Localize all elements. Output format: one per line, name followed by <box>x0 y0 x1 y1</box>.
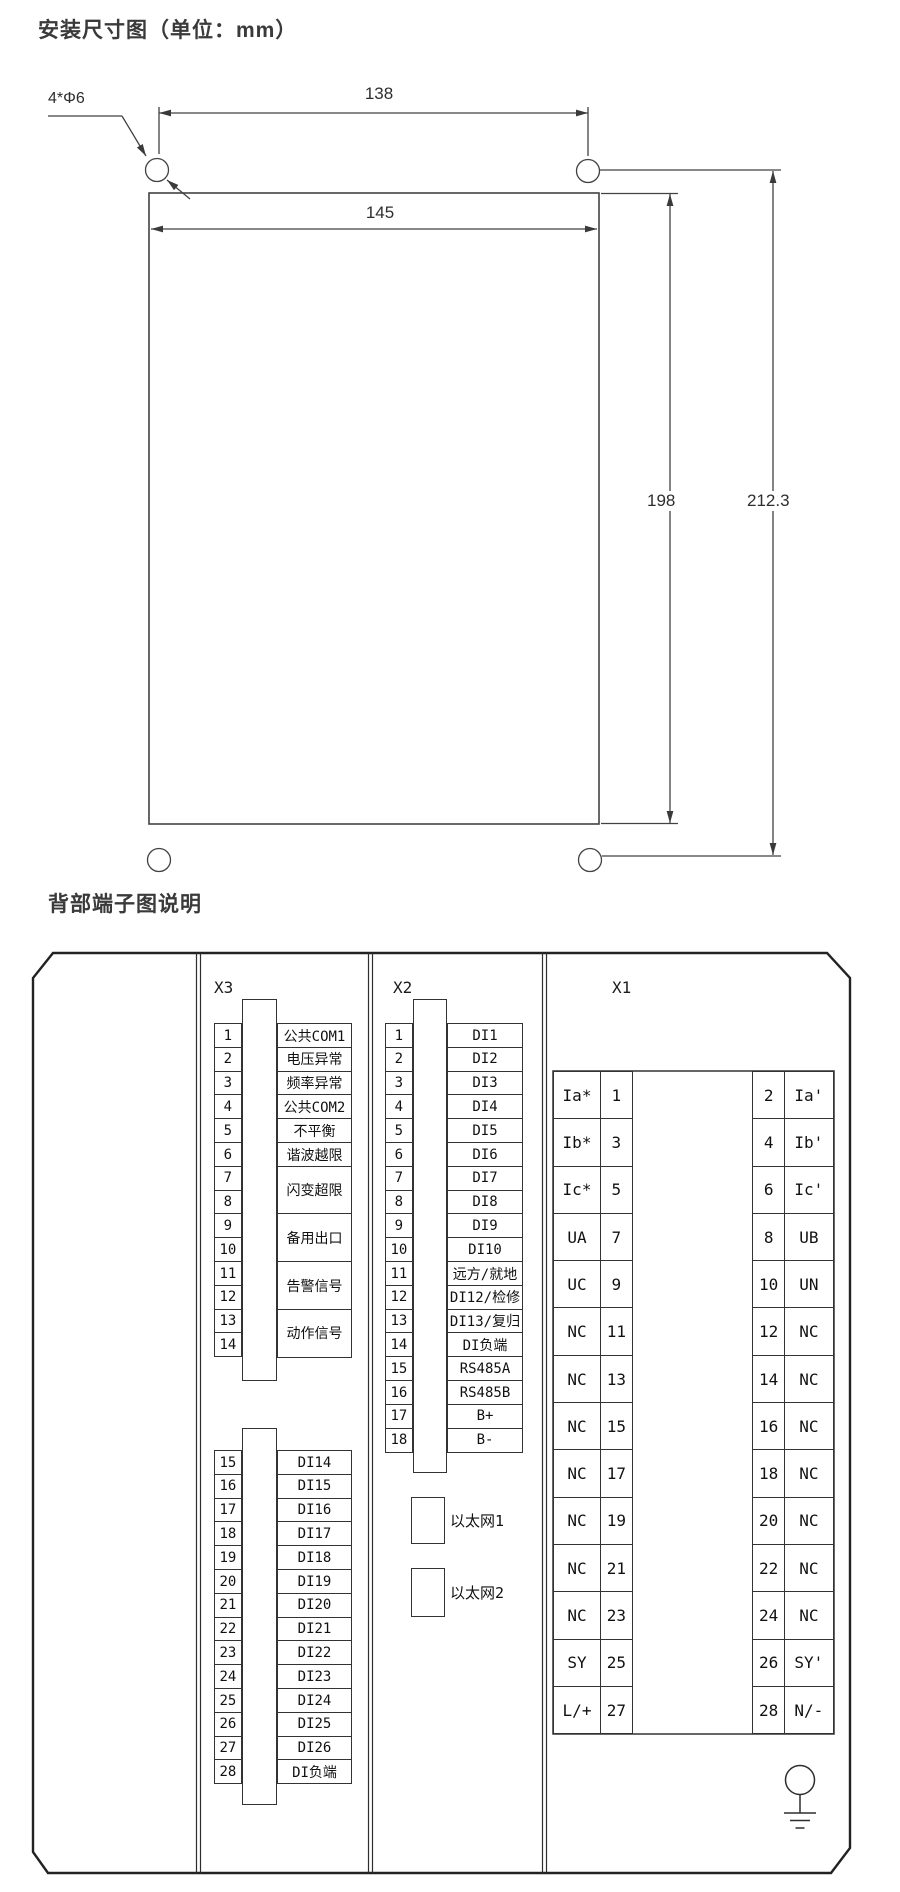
terminal-number: 8 <box>385 1190 413 1215</box>
terminal-number: 28 <box>214 1759 242 1784</box>
ethernet-port-2-label: 以太网2 <box>450 1568 504 1617</box>
x2-header: X2 <box>393 978 412 997</box>
x1-right-label: NC <box>784 1544 834 1593</box>
x2-numbers: 123456789101112131415161718 <box>385 1023 413 1453</box>
terminal-number: 8 <box>214 1190 242 1215</box>
terminal-number: 4 <box>385 1094 413 1119</box>
terminal-number: 7 <box>214 1166 242 1191</box>
device-outline <box>149 193 599 824</box>
terminal-number: 26 <box>214 1712 242 1737</box>
x1-right-label: Ib' <box>784 1118 834 1167</box>
terminal-label: DI14 <box>277 1450 352 1475</box>
terminal-label: 不平衡 <box>277 1118 352 1143</box>
terminal-label: DI负端 <box>447 1332 523 1357</box>
leader-arrow <box>122 116 146 156</box>
ethernet-port-1-box <box>411 1497 445 1544</box>
x1-left-number: 27 <box>600 1686 633 1735</box>
terminal-label: DI7 <box>447 1166 523 1191</box>
terminal-number: 18 <box>385 1428 413 1453</box>
terminal-label: DI10 <box>447 1237 523 1262</box>
terminal-number: 3 <box>214 1071 242 1096</box>
terminal-label: DI3 <box>447 1071 523 1096</box>
terminal-number: 18 <box>214 1521 242 1546</box>
x1-left-number: 3 <box>600 1118 633 1167</box>
terminal-label: RS485B <box>447 1380 523 1405</box>
dim-height-outer: 212.3 <box>744 491 793 511</box>
x1-terminal-row: NC 23 24 NC <box>553 1591 834 1640</box>
x1-terminal-row: UC 9 10 UN <box>553 1260 834 1309</box>
terminal-number: 27 <box>214 1736 242 1761</box>
x1-right-number: 24 <box>752 1591 785 1640</box>
x1-terminal-row: NC 17 18 NC <box>553 1449 834 1498</box>
terminal-label: 动作信号 <box>277 1309 352 1358</box>
terminal-number: 7 <box>385 1166 413 1191</box>
x1-right-number: 22 <box>752 1544 785 1593</box>
mounting-hole-icon <box>577 160 600 183</box>
terminal-label: DI26 <box>277 1736 352 1761</box>
x1-right-number: 14 <box>752 1355 785 1404</box>
x1-right-label: UB <box>784 1213 834 1262</box>
terminal-number: 17 <box>214 1498 242 1523</box>
x3-upper-labels-single: 公共COM1电压异常频率异常公共COM2不平衡谐波越限 <box>277 1023 352 1167</box>
x1-right-label: Ic' <box>784 1166 834 1215</box>
terminal-label: B+ <box>447 1404 523 1429</box>
terminal-number: 16 <box>385 1380 413 1405</box>
x1-terminal-row: NC 19 20 NC <box>553 1497 834 1546</box>
x1-terminal-row: UA 7 8 UB <box>553 1213 834 1262</box>
terminal-label: DI15 <box>277 1474 352 1499</box>
x1-terminal-row: Ic* 5 6 Ic' <box>553 1166 834 1215</box>
terminal-number: 6 <box>385 1142 413 1167</box>
x1-left-number: 9 <box>600 1260 633 1309</box>
terminal-number: 9 <box>385 1213 413 1238</box>
x1-right-label: NC <box>784 1497 834 1546</box>
terminal-label: DI19 <box>277 1569 352 1594</box>
x1-right-number: 8 <box>752 1213 785 1262</box>
x3-upper-labels: 公共COM1电压异常频率异常公共COM2不平衡谐波越限 闪变超限备用出口告警信号… <box>277 1023 352 1358</box>
x1-left-label: L/+ <box>553 1686 601 1735</box>
terminal-number: 14 <box>385 1332 413 1357</box>
terminal-label: DI4 <box>447 1094 523 1119</box>
x1-left-label: Ia* <box>553 1071 601 1120</box>
x1-right-label: NC <box>784 1355 834 1404</box>
terminal-number: 21 <box>214 1593 242 1618</box>
x3-connector-bar-lower <box>242 1428 277 1805</box>
x3-lower-numbers: 1516171819202122232425262728 <box>214 1450 242 1784</box>
terminal-title: 背部端子图说明 <box>48 888 202 918</box>
terminal-number: 14 <box>214 1332 242 1357</box>
x1-terminal-row: Ib* 3 4 Ib' <box>553 1118 834 1167</box>
terminal-label: 谐波越限 <box>277 1142 352 1167</box>
terminal-number: 19 <box>214 1545 242 1570</box>
terminal-number: 13 <box>385 1309 413 1334</box>
x2-connector-bar <box>413 999 447 1473</box>
x3-lower-labels: DI14DI15DI16DI17DI18DI19DI20DI21DI22DI23… <box>277 1450 352 1784</box>
mounting-hole-icon <box>148 849 171 872</box>
terminal-number: 10 <box>385 1237 413 1262</box>
x3-upper-numbers: 1234567891011121314 <box>214 1023 242 1357</box>
terminal-label: DI8 <box>447 1190 523 1215</box>
x1-left-label: NC <box>553 1544 601 1593</box>
terminal-number: 4 <box>214 1094 242 1119</box>
terminal-number: 1 <box>385 1023 413 1048</box>
terminal-label: 频率异常 <box>277 1071 352 1096</box>
terminal-label: DI23 <box>277 1664 352 1689</box>
terminal-number: 22 <box>214 1617 242 1642</box>
terminal-number: 9 <box>214 1213 242 1238</box>
terminal-number: 17 <box>385 1404 413 1429</box>
x1-right-label: NC <box>784 1591 834 1640</box>
terminal-number: 2 <box>214 1047 242 1072</box>
terminal-label: 告警信号 <box>277 1261 352 1310</box>
x1-right-number: 26 <box>752 1639 785 1688</box>
x1-left-label: Ic* <box>553 1166 601 1215</box>
x1-terminal-rows: Ia* 1 2 Ia' Ib* 3 4 Ib' Ic* 5 6 Ic' UA <box>553 1071 834 1734</box>
terminal-label: DI2 <box>447 1047 523 1072</box>
x1-left-label: SY <box>553 1639 601 1688</box>
terminal-label: 备用出口 <box>277 1213 352 1262</box>
x1-right-label: UN <box>784 1260 834 1309</box>
x1-right-label: NC <box>784 1307 834 1356</box>
x1-header: X1 <box>612 978 631 997</box>
terminal-label: 电压异常 <box>277 1047 352 1072</box>
x1-right-number: 18 <box>752 1449 785 1498</box>
terminal-label: DI6 <box>447 1142 523 1167</box>
terminal-label: DI22 <box>277 1640 352 1665</box>
terminal-label: 闪变超限 <box>277 1166 352 1215</box>
terminal-number: 12 <box>214 1285 242 1310</box>
x1-terminal-row: NC 15 16 NC <box>553 1402 834 1451</box>
x1-right-number: 10 <box>752 1260 785 1309</box>
dim-height-inner: 198 <box>644 491 678 511</box>
x1-terminal-row: NC 21 22 NC <box>553 1544 834 1593</box>
x2-labels: DI1DI2DI3DI4DI5DI6DI7DI8DI9DI10远方/就地DI12… <box>447 1023 523 1453</box>
x1-left-label: NC <box>553 1307 601 1356</box>
terminal-label: DI12/检修 <box>447 1285 523 1310</box>
x3-upper-labels-double: 闪变超限备用出口告警信号动作信号 <box>277 1166 352 1358</box>
terminal-number: 25 <box>214 1688 242 1713</box>
page: 安装尺寸图（单位：mm） 背部端子图说明 138 145 198 212.3 4… <box>0 0 900 1892</box>
terminal-number: 24 <box>214 1664 242 1689</box>
x1-left-number: 1 <box>600 1071 633 1120</box>
terminal-number: 16 <box>214 1474 242 1499</box>
x1-left-number: 25 <box>600 1639 633 1688</box>
terminal-label: DI13/复归 <box>447 1309 523 1334</box>
x1-right-label: N/- <box>784 1686 834 1735</box>
terminal-label: DI16 <box>277 1498 352 1523</box>
ethernet-port-1-label: 以太网1 <box>450 1497 504 1544</box>
terminal-label: DI1 <box>447 1023 523 1048</box>
x1-left-number: 7 <box>600 1213 633 1262</box>
x1-left-label: UA <box>553 1213 601 1262</box>
terminal-number: 5 <box>214 1118 242 1143</box>
x1-left-label: Ib* <box>553 1118 601 1167</box>
x1-right-label: NC <box>784 1402 834 1451</box>
x1-left-label: NC <box>553 1591 601 1640</box>
mounting-hole-icon <box>579 849 602 872</box>
x1-left-number: 21 <box>600 1544 633 1593</box>
terminal-label: DI18 <box>277 1545 352 1570</box>
terminal-number: 15 <box>214 1450 242 1475</box>
x1-left-label: UC <box>553 1260 601 1309</box>
x1-terminal-row: NC 11 12 NC <box>553 1307 834 1356</box>
x1-left-number: 23 <box>600 1591 633 1640</box>
terminal-label: DI17 <box>277 1521 352 1546</box>
terminal-label: DI20 <box>277 1593 352 1618</box>
x1-right-number: 16 <box>752 1402 785 1451</box>
x1-right-number: 6 <box>752 1166 785 1215</box>
x1-left-number: 11 <box>600 1307 633 1356</box>
terminal-number: 3 <box>385 1071 413 1096</box>
terminal-label: B- <box>447 1428 523 1453</box>
terminal-label: DI9 <box>447 1213 523 1238</box>
terminal-label: DI21 <box>277 1617 352 1642</box>
x1-right-number: 12 <box>752 1307 785 1356</box>
x1-right-number: 4 <box>752 1118 785 1167</box>
terminal-label: DI25 <box>277 1712 352 1737</box>
ethernet-port-2-box <box>411 1568 445 1617</box>
terminal-label: DI5 <box>447 1118 523 1143</box>
x1-left-number: 5 <box>600 1166 633 1215</box>
terminal-label: 公共COM1 <box>277 1023 352 1048</box>
x1-left-number: 19 <box>600 1497 633 1546</box>
terminal-label: DI24 <box>277 1688 352 1713</box>
dim-width-panel: 145 <box>340 203 420 223</box>
x1-left-number: 13 <box>600 1355 633 1404</box>
terminal-number: 15 <box>385 1356 413 1381</box>
x1-left-label: NC <box>553 1497 601 1546</box>
x1-right-label: NC <box>784 1449 834 1498</box>
terminal-number: 6 <box>214 1142 242 1167</box>
terminal-number: 12 <box>385 1285 413 1310</box>
x1-left-label: NC <box>553 1355 601 1404</box>
terminal-label: 远方/就地 <box>447 1261 523 1286</box>
terminal-number: 5 <box>385 1118 413 1143</box>
leader-arrow <box>167 180 190 199</box>
terminal-number: 2 <box>385 1047 413 1072</box>
holes-note: 4*Φ6 <box>48 90 85 108</box>
x1-left-label: NC <box>553 1449 601 1498</box>
dimension-title: 安装尺寸图（单位：mm） <box>38 14 297 44</box>
x1-left-number: 15 <box>600 1402 633 1451</box>
terminal-number: 11 <box>385 1261 413 1286</box>
terminal-label: RS485A <box>447 1356 523 1381</box>
x3-connector-bar-upper <box>242 999 277 1381</box>
terminal-number: 13 <box>214 1309 242 1334</box>
x3-header: X3 <box>214 978 233 997</box>
terminal-label: DI负端 <box>277 1759 352 1784</box>
mounting-hole-icon <box>146 159 169 182</box>
x1-left-number: 17 <box>600 1449 633 1498</box>
terminal-number: 1 <box>214 1023 242 1048</box>
terminal-number: 11 <box>214 1261 242 1286</box>
x1-right-number: 2 <box>752 1071 785 1120</box>
x1-terminal-row: L/+ 27 28 N/- <box>553 1686 834 1735</box>
terminal-label: 公共COM2 <box>277 1094 352 1119</box>
x1-right-number: 28 <box>752 1686 785 1735</box>
x1-terminal-row: Ia* 1 2 Ia' <box>553 1071 834 1120</box>
terminal-number: 20 <box>214 1569 242 1594</box>
x1-right-label: SY' <box>784 1639 834 1688</box>
dim-width-top: 138 <box>339 84 419 104</box>
x1-left-label: NC <box>553 1402 601 1451</box>
terminal-number: 23 <box>214 1640 242 1665</box>
x1-right-number: 20 <box>752 1497 785 1546</box>
x1-right-label: Ia' <box>784 1071 834 1120</box>
x1-terminal-row: SY 25 26 SY' <box>553 1639 834 1688</box>
terminal-number: 10 <box>214 1237 242 1262</box>
x1-terminal-row: NC 13 14 NC <box>553 1355 834 1404</box>
